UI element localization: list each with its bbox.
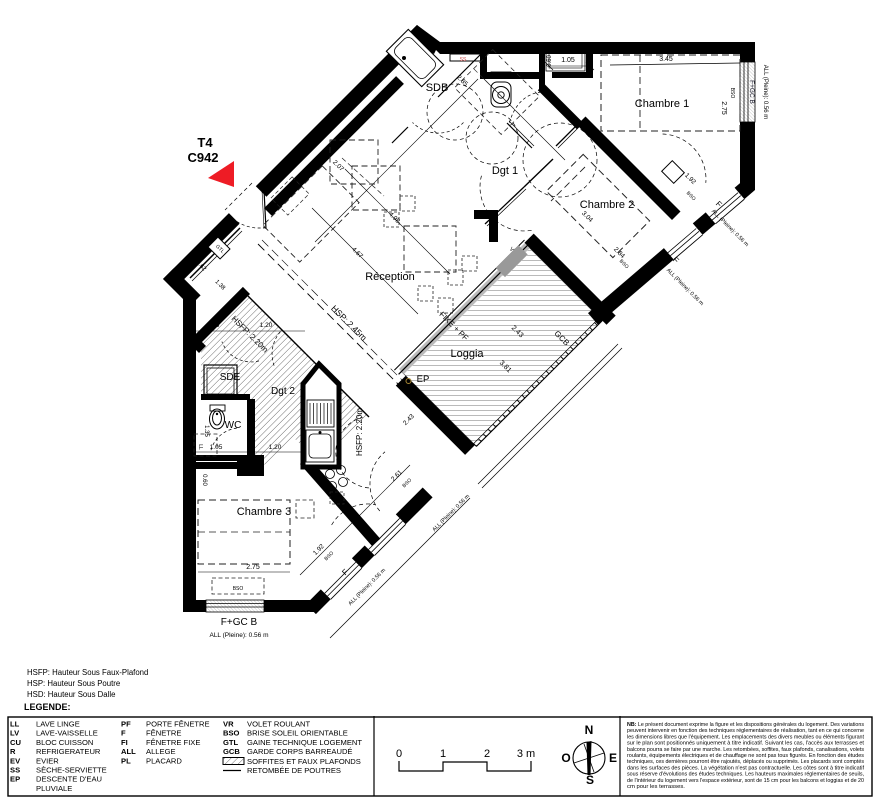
svg-text:BSO: BSO [223, 729, 240, 738]
svg-text:les dimensions libres que l'éq: les dimensions libres que l'équipement. … [627, 734, 864, 740]
svg-text:RETOMBÉE DE POUTRES: RETOMBÉE DE POUTRES [247, 766, 341, 775]
svg-text:HSFP: 2.20m: HSFP: 2.20m [355, 408, 364, 456]
svg-text:Dgt 1: Dgt 1 [492, 165, 518, 177]
svg-text:1.05: 1.05 [561, 57, 575, 64]
svg-text:LL: LL [10, 720, 20, 729]
svg-text:1: 1 [440, 748, 446, 760]
svg-text:HSD: Hauteur Sous Dalle: HSD: Hauteur Sous Dalle [27, 690, 115, 699]
svg-text:C942: C942 [187, 150, 218, 165]
svg-text:F+GC B: F+GC B [221, 617, 258, 628]
svg-text:O: O [561, 751, 570, 765]
svg-text:de l'intérieur du logement ver: de l'intérieur du logement vers l'espace… [627, 778, 865, 784]
svg-text:Réception: Réception [365, 271, 415, 283]
svg-text:FI: FI [121, 738, 128, 747]
svg-text:FÊNETRE FIXE: FÊNETRE FIXE [146, 738, 200, 747]
svg-text:PORTE FÊNETRE: PORTE FÊNETRE [146, 720, 210, 729]
svg-text:Dgt 2: Dgt 2 [271, 386, 295, 397]
svg-text:SS: SS [460, 57, 467, 63]
svg-text:SS: SS [10, 766, 20, 775]
svg-text:FÊNETRE: FÊNETRE [146, 729, 181, 738]
svg-text:WC: WC [225, 420, 242, 431]
svg-text:1.05: 1.05 [210, 444, 223, 451]
svg-text:Chambre 1: Chambre 1 [635, 98, 689, 110]
svg-text:LL: LL [197, 444, 203, 450]
svg-text:VR: VR [223, 720, 234, 729]
svg-text:NB: Le présent document expri: NB: Le présent document exprime la figur… [627, 722, 864, 728]
svg-text:EP: EP [417, 374, 430, 385]
svg-text:GTL: GTL [223, 738, 239, 747]
svg-text:BRISE SOLEIL ORIENTABLE: BRISE SOLEIL ORIENTABLE [247, 729, 348, 738]
svg-text:PLUVIALE: PLUVIALE [36, 784, 72, 793]
svg-text:ALL (Pleine): 0.56 m: ALL (Pleine): 0.56 m [209, 632, 268, 639]
svg-text:roulants, équipements électriq: roulants, équipements électriques et de … [627, 753, 864, 759]
svg-text:3.45: 3.45 [659, 56, 673, 63]
svg-text:2: 2 [484, 748, 490, 760]
svg-text:techniques, ces dernières pour: techniques, ces dernières pourront être … [627, 759, 864, 765]
svg-text:0.60: 0.60 [201, 474, 207, 486]
svg-text:GCB: GCB [223, 747, 240, 756]
svg-text:BSO: BSO [729, 88, 735, 99]
svg-text:3 m: 3 m [517, 748, 535, 760]
svg-text:BSO: BSO [233, 586, 244, 592]
svg-text:REFRIGERATEUR: REFRIGERATEUR [36, 747, 101, 756]
svg-text:SOFFITES ET FAUX PLAFONDS: SOFFITES ET FAUX PLAFONDS [247, 757, 361, 766]
svg-text:VOLET ROULANT: VOLET ROULANT [247, 720, 311, 729]
svg-text:LV: LV [10, 729, 20, 738]
svg-text:N: N [585, 723, 594, 737]
svg-text:1.05: 1.05 [207, 322, 220, 329]
svg-text:GARDE CORPS BARREAUDÉ: GARDE CORPS BARREAUDÉ [247, 747, 353, 756]
svg-text:ALLEGE: ALLEGE [146, 747, 176, 756]
svg-text:ALL (Pleine): 0.56 m: ALL (Pleine): 0.56 m [762, 65, 768, 119]
svg-text:GAINE TECHNIQUE LOGEMENT: GAINE TECHNIQUE LOGEMENT [247, 738, 362, 747]
svg-text:2.75: 2.75 [720, 101, 727, 115]
svg-text:HSFP: Hauteur Sous Faux-Plafon: HSFP: Hauteur Sous Faux-Plafond [27, 668, 148, 677]
svg-text:LAVE-VAISSELLE: LAVE-VAISSELLE [36, 729, 98, 738]
svg-text:T4: T4 [197, 135, 213, 150]
svg-text:CU: CU [10, 738, 21, 747]
svg-text:EV: EV [10, 756, 21, 765]
svg-text:1.35: 1.35 [203, 425, 209, 437]
svg-text:1.20: 1.20 [269, 444, 282, 451]
svg-text:cm pour les terrasses.: cm pour les terrasses. [627, 784, 685, 790]
svg-text:ALL: ALL [121, 747, 136, 756]
svg-text:balcons pourra se faire par un: balcons pourra se faire par une marche. … [627, 747, 864, 753]
svg-text:EVIER: EVIER [36, 756, 59, 765]
svg-text:sous réserve d'évolutions des: sous réserve d'évolutions des études tec… [627, 772, 864, 778]
svg-text:S: S [586, 773, 594, 787]
svg-text:sur le plan sont positionnés u: sur le plan sont positionnés uniquement … [627, 741, 864, 747]
svg-text:EP: EP [10, 775, 20, 784]
svg-text:SDB: SDB [426, 82, 449, 94]
svg-text:Chambre 3: Chambre 3 [237, 506, 291, 518]
svg-text:R: R [10, 747, 16, 756]
svg-text:HSP: Hauteur Sous Poutre: HSP: Hauteur Sous Poutre [27, 679, 120, 688]
svg-text:dans les surfaces des pièces.: dans les surfaces des pièces. La végétat… [627, 765, 864, 771]
svg-text:E: E [609, 751, 617, 765]
svg-text:Chambre 2: Chambre 2 [580, 199, 634, 211]
svg-text:2.75: 2.75 [246, 564, 260, 571]
svg-text:F+GC B: F+GC B [748, 80, 755, 104]
svg-text:PF: PF [121, 720, 131, 729]
svg-text:Loggia: Loggia [450, 348, 484, 360]
svg-text:1.20: 1.20 [260, 322, 273, 329]
svg-text:0: 0 [396, 748, 402, 760]
svg-text:DESCENTE D'EAU: DESCENTE D'EAU [36, 775, 102, 784]
svg-text:0.61: 0.61 [205, 464, 217, 470]
svg-text:BLOC CUISSON: BLOC CUISSON [36, 738, 93, 747]
svg-text:PLACARD: PLACARD [146, 756, 182, 765]
svg-text:LAVE LINGE: LAVE LINGE [36, 720, 80, 729]
svg-text:LEGENDE:: LEGENDE: [24, 702, 71, 712]
svg-text:peuvent intervenir en fonction: peuvent intervenir en fonction des techn… [627, 728, 865, 734]
svg-text:F: F [121, 729, 126, 738]
svg-text:SDE: SDE [220, 372, 241, 383]
svg-text:SÈCHE-SERVIETTE: SÈCHE-SERVIETTE [36, 766, 107, 775]
svg-text:PL: PL [121, 756, 131, 765]
